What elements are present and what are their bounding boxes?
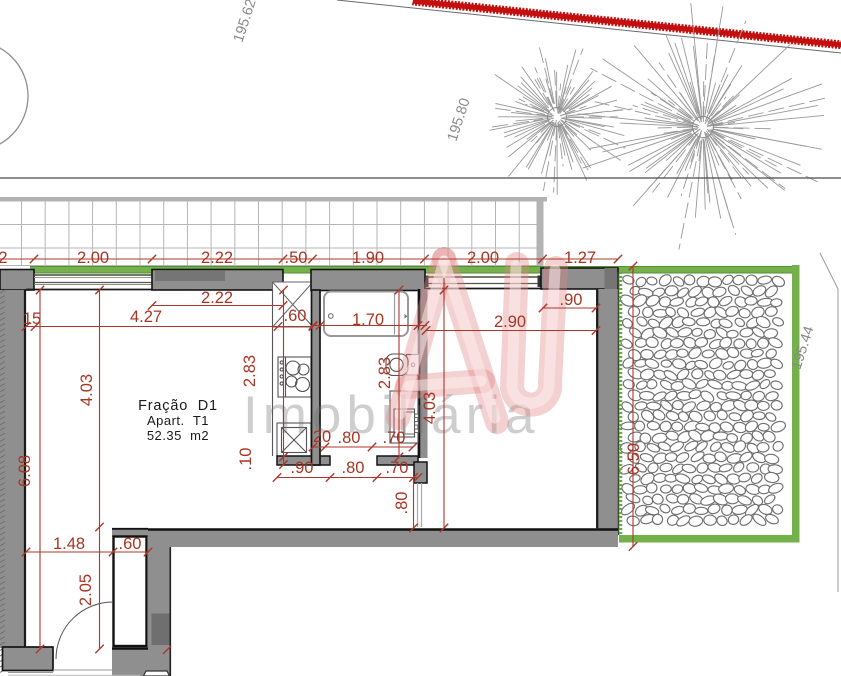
svg-text:2.22: 2.22 <box>201 249 233 267</box>
svg-text:1.27: 1.27 <box>564 249 596 267</box>
svg-text:4.03: 4.03 <box>78 374 96 406</box>
svg-text:4.03: 4.03 <box>421 392 439 424</box>
svg-text:.60: .60 <box>119 535 142 553</box>
svg-text:1.70: 1.70 <box>352 311 384 329</box>
svg-text:.80: .80 <box>338 429 361 447</box>
svg-text:195.80: 195.80 <box>445 96 474 143</box>
svg-text:2.83: 2.83 <box>376 357 394 389</box>
svg-text:.50: .50 <box>285 249 308 267</box>
svg-text:Fração D1: Fração D1 <box>138 398 218 414</box>
svg-text:2.00: 2.00 <box>77 249 109 267</box>
svg-text:Apart. T1: Apart. T1 <box>147 413 209 428</box>
svg-text:6.50: 6.50 <box>625 443 643 475</box>
svg-text:4.27: 4.27 <box>130 308 162 326</box>
svg-text:1.48: 1.48 <box>53 535 85 553</box>
svg-text:.90: .90 <box>560 291 583 309</box>
svg-text:.80: .80 <box>393 492 411 515</box>
svg-text:.60: .60 <box>284 307 307 325</box>
svg-text:195.62: 195.62 <box>231 0 260 44</box>
svg-text:52.35 m2: 52.35 m2 <box>147 428 209 443</box>
svg-text:2.90: 2.90 <box>494 313 526 331</box>
svg-text:.10: .10 <box>237 448 255 471</box>
svg-text:.70: .70 <box>383 429 406 447</box>
svg-text:6.08: 6.08 <box>16 455 34 487</box>
svg-text:.80: .80 <box>342 459 365 477</box>
svg-text:2.83: 2.83 <box>241 355 259 387</box>
svg-text:2.22: 2.22 <box>201 289 233 307</box>
svg-text:2: 2 <box>0 249 8 267</box>
svg-text:.90: .90 <box>291 459 314 477</box>
svg-text:15: 15 <box>23 310 41 328</box>
svg-text:2.00: 2.00 <box>467 249 499 267</box>
svg-text:2.05: 2.05 <box>77 574 95 606</box>
svg-text:.70: .70 <box>386 459 409 477</box>
svg-text:1.90: 1.90 <box>352 249 384 267</box>
svg-text:20: 20 <box>313 428 331 446</box>
